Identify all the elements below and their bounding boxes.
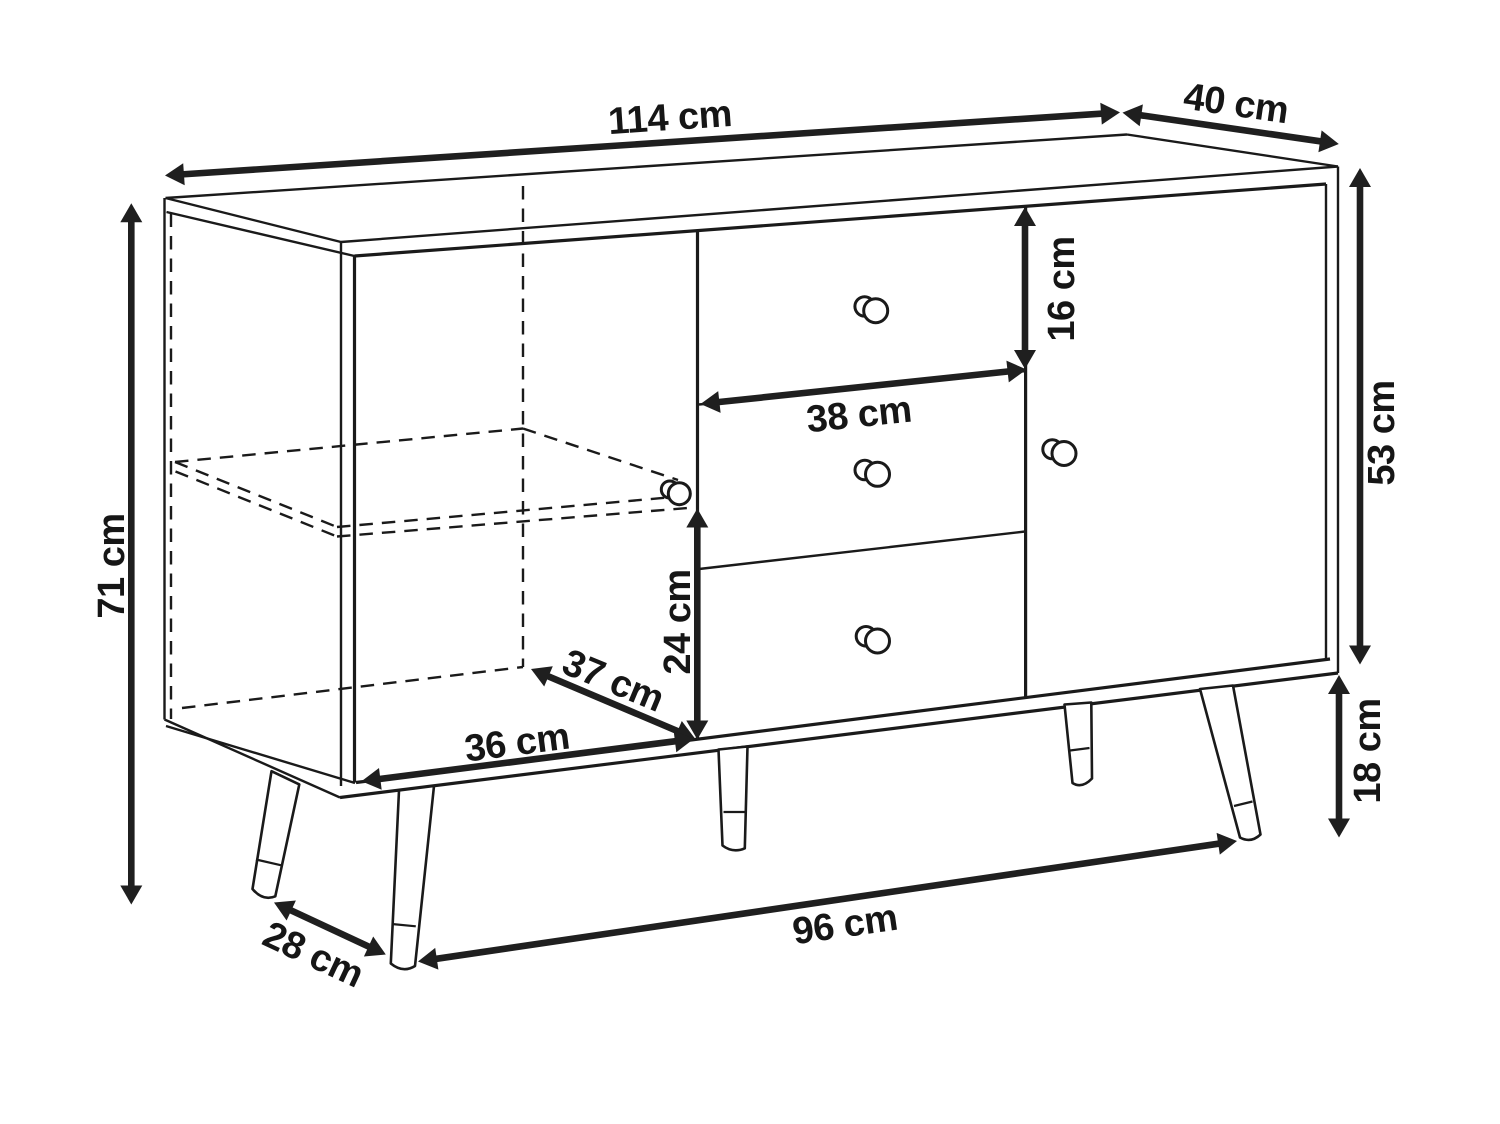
svg-text:53 cm: 53 cm (1361, 380, 1403, 485)
svg-text:18 cm: 18 cm (1347, 698, 1389, 803)
svg-text:114 cm: 114 cm (607, 93, 733, 143)
svg-text:24 cm: 24 cm (657, 569, 699, 674)
svg-text:71 cm: 71 cm (91, 513, 133, 618)
svg-text:16 cm: 16 cm (1041, 236, 1083, 341)
